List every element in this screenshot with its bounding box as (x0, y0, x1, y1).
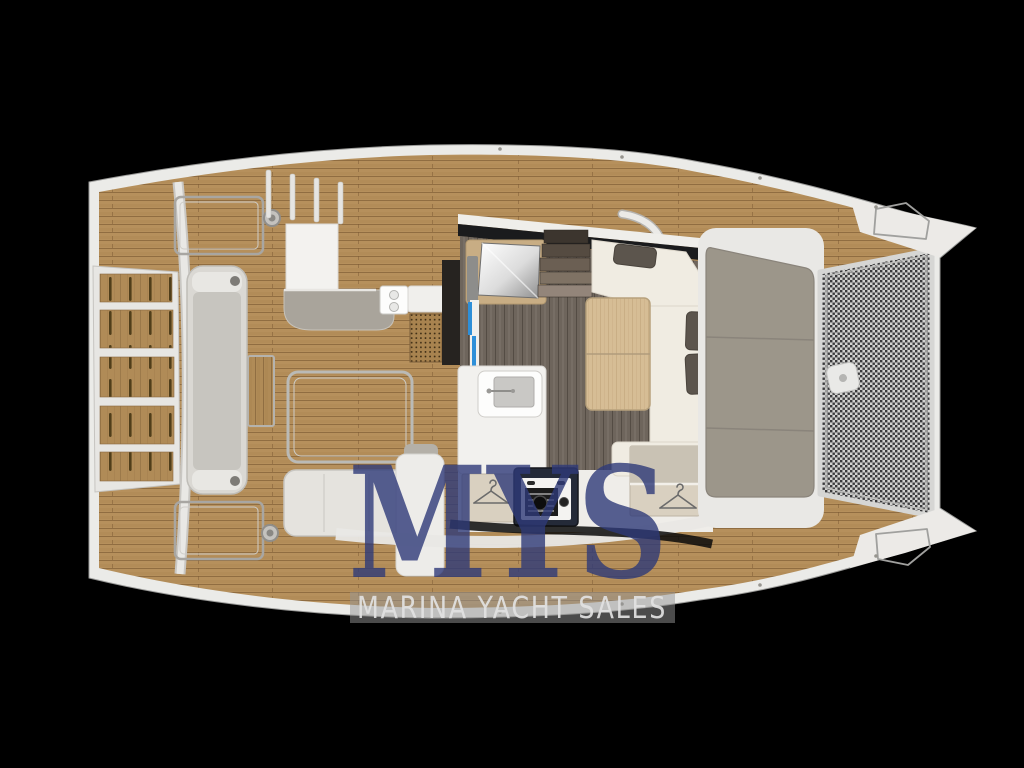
teak-grate (410, 314, 442, 362)
platform-slat-panel (100, 310, 173, 348)
yacht-floorplan-image: MARINA YACHT SALES MYS (0, 0, 1024, 768)
galley-counter (284, 290, 394, 330)
platform-slat-panel (100, 406, 174, 444)
aft-bench-seat (187, 266, 247, 494)
platform-slat-panel (100, 274, 172, 302)
cupholder (230, 276, 240, 286)
platform-slat-panel (100, 357, 174, 397)
winch-icon (262, 525, 278, 541)
catamaran-floorplan: MARINA YACHT SALES MYS (0, 0, 1024, 768)
forward-sunpad (706, 248, 814, 497)
galley-sink (380, 286, 408, 314)
galley-partition (286, 224, 338, 290)
door-handle-bar (467, 256, 478, 302)
door-accent-blue (472, 336, 476, 368)
companionway-steps (538, 230, 592, 297)
dark-locker (442, 260, 460, 365)
door-accent-blue (468, 302, 472, 335)
cleat-icon (825, 361, 860, 395)
swim-platform (93, 266, 180, 492)
trampoline (820, 250, 932, 516)
dining-table (586, 298, 650, 410)
platform-slat-panel (100, 452, 173, 481)
watermark-logo: MYS (348, 433, 668, 614)
cupholder (230, 476, 240, 486)
side-table (248, 356, 274, 426)
